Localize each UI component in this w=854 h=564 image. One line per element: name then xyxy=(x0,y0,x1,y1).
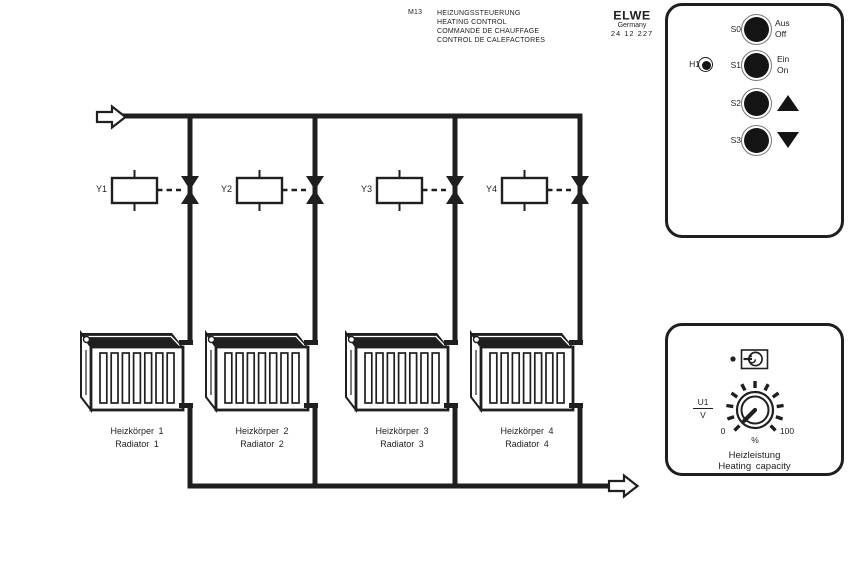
actuator-box-y3 xyxy=(377,170,422,211)
button-s0-caption: Aus Off xyxy=(775,18,790,39)
radiator-4-graphic xyxy=(471,333,573,410)
radiator-1-graphic xyxy=(81,333,183,410)
radiator-1-label: Heizkörper 1 Radiator 1 xyxy=(72,425,202,450)
signal-numerator: U1 xyxy=(688,397,718,407)
valve-label-y3: Y3 xyxy=(332,184,372,194)
heating-control-schematic-page: M13 HEIZUNGSSTEUERUNG HEATING CONTROL CO… xyxy=(0,0,854,564)
capacity-label-de: Heizleistung xyxy=(668,450,841,461)
arrow-down-icon xyxy=(777,132,799,148)
radiator-3-label: Heizkörper 3 Radiator 3 xyxy=(337,425,467,450)
indicator-h1-label: H1 xyxy=(676,59,700,69)
radiator-3-graphic xyxy=(346,333,448,410)
actuator-box-y1 xyxy=(112,170,157,211)
actuator-box-y4 xyxy=(502,170,547,211)
radiator-2-label-en: Radiator 2 xyxy=(197,438,327,451)
radiator-2-label: Heizkörper 2 Radiator 2 xyxy=(197,425,327,450)
scale-max-label: 100 xyxy=(773,426,801,436)
button-s3[interactable] xyxy=(744,128,769,153)
radiator-4-label-en: Radiator 4 xyxy=(462,438,592,451)
s0-caption-de: Aus xyxy=(775,18,790,29)
capacity-panel: U1 V 0 100 % Heizleistung Heating capaci… xyxy=(665,323,844,476)
valve-label-y1: Y1 xyxy=(67,184,107,194)
button-s1[interactable] xyxy=(744,53,769,78)
radiator-4-label-de: Heizkörper 4 xyxy=(462,425,592,438)
radiator-2-label-de: Heizkörper 2 xyxy=(197,425,327,438)
s1-caption-de: Ein xyxy=(777,54,789,65)
actuator-box-y2 xyxy=(237,170,282,211)
supply-pipes xyxy=(122,114,583,346)
radiator-2-graphic xyxy=(206,333,308,410)
button-s2[interactable] xyxy=(744,91,769,116)
control-panel: S0 Aus Off H1 S1 Ein On S2 S3 xyxy=(665,3,844,238)
fraction-bar xyxy=(693,408,713,409)
button-s2-label: S2 xyxy=(706,98,741,108)
s0-caption-en: Off xyxy=(775,29,790,40)
button-s3-ring xyxy=(741,125,772,156)
arrow-up-icon xyxy=(777,95,799,111)
scale-min-label: 0 xyxy=(715,426,731,436)
capacity-label-en: Heating capacity xyxy=(668,461,841,472)
valve-4-icon xyxy=(571,176,589,204)
signal-denominator: V xyxy=(688,410,718,420)
s1-caption-en: On xyxy=(777,65,789,76)
radiator-3-label-de: Heizkörper 3 xyxy=(337,425,467,438)
outlet-flow-arrow-icon xyxy=(609,476,638,497)
radiator-1-label-en: Radiator 1 xyxy=(72,438,202,451)
radiator-3-label-en: Radiator 3 xyxy=(337,438,467,451)
radiator-1-label-de: Heizkörper 1 xyxy=(72,425,202,438)
radiator-4-label: Heizkörper 4 Radiator 4 xyxy=(462,425,592,450)
valve-label-y2: Y2 xyxy=(192,184,232,194)
button-s1-ring xyxy=(741,50,772,81)
signal-socket-icon xyxy=(730,350,767,369)
button-s0[interactable] xyxy=(744,17,769,42)
valve-2-icon xyxy=(306,176,324,204)
button-s1-caption: Ein On xyxy=(777,54,789,75)
scale-unit-label: % xyxy=(745,435,765,445)
button-s0-ring xyxy=(741,14,772,45)
button-s3-label: S3 xyxy=(706,135,741,145)
button-s2-ring xyxy=(741,88,772,119)
button-s0-label: S0 xyxy=(706,24,741,34)
button-s1-label: S1 xyxy=(706,60,741,70)
heating-capacity-knob[interactable] xyxy=(737,392,773,428)
valve-label-y4: Y4 xyxy=(457,184,497,194)
piping-schematic xyxy=(0,0,660,564)
inlet-flow-arrow-icon xyxy=(97,107,126,128)
